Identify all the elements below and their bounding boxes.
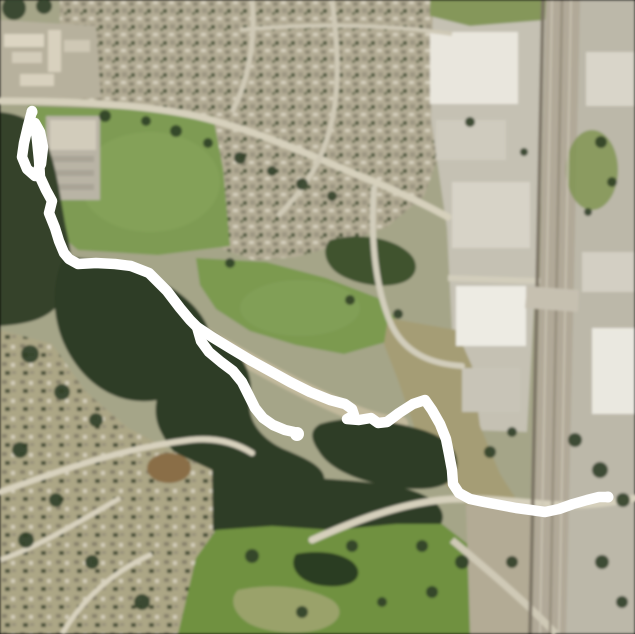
tree-cluster [616,596,628,608]
tree-cluster [141,116,151,126]
tree-cluster [225,258,235,268]
tree-cluster [506,556,518,568]
tree-cluster [245,549,259,563]
commercial-building-east [582,252,634,292]
apartment-building [20,74,54,86]
tree-cluster [465,117,475,127]
tree-cluster [455,555,469,569]
big-box-store [430,32,518,104]
sports-field-light-patch [80,132,220,232]
tree-cluster [607,177,617,187]
tree-cluster [12,442,28,458]
gps-track-end-point [603,492,614,503]
meadow-light-patch [240,280,360,336]
tree-cluster [327,191,337,201]
tree-cluster [54,384,70,400]
tree-cluster [234,152,246,164]
apartment-building [12,52,42,63]
gps-track-start-point [27,107,38,118]
warehouse-east [592,328,635,414]
apartment-building [64,40,90,52]
tree-cluster [595,136,607,148]
tree-cluster [296,178,308,190]
tree-cluster [426,586,438,598]
tree-cluster [99,110,111,122]
tree-cluster [85,555,99,569]
tree-cluster [616,493,630,507]
tree-cluster [592,462,608,478]
dirt-patch [147,453,191,483]
map-imagery [0,0,635,634]
tree-cluster [416,540,428,552]
tree-cluster [346,540,358,552]
parking-row [52,170,94,176]
highway-overpass [525,286,579,312]
tree-cluster [520,148,528,156]
tree-cluster [170,125,182,137]
tree-cluster [296,606,308,618]
tree-cluster [345,295,355,305]
tree-cluster [507,427,517,437]
tree-cluster [568,433,582,447]
parking-row [52,156,94,162]
road-commercial-crossing [448,278,540,281]
tree-cluster [21,345,39,363]
tree-cluster [377,597,387,607]
tree-cluster [49,493,63,507]
tree-cluster [584,208,592,216]
tree-cluster [134,594,150,610]
lowland-southeast [466,504,533,634]
apartment-building [4,34,44,47]
satellite-map [0,0,635,634]
tree-cluster [595,555,609,569]
gps-track-branch-endpoint [290,427,304,441]
tree-cluster [203,138,213,148]
map-viewport[interactable] [0,0,635,634]
tree-cluster [18,532,34,548]
apartment-building [48,30,61,72]
tree-cluster [393,309,403,319]
green-patch-east [566,130,618,210]
tree-cluster [484,446,496,458]
commercial-building-east [586,52,634,106]
parking-structure [462,368,520,412]
tree-cluster [267,166,277,176]
big-box-store [456,286,526,346]
commercial-building [452,182,530,248]
school-building [50,120,96,150]
tree-cluster [89,413,103,427]
